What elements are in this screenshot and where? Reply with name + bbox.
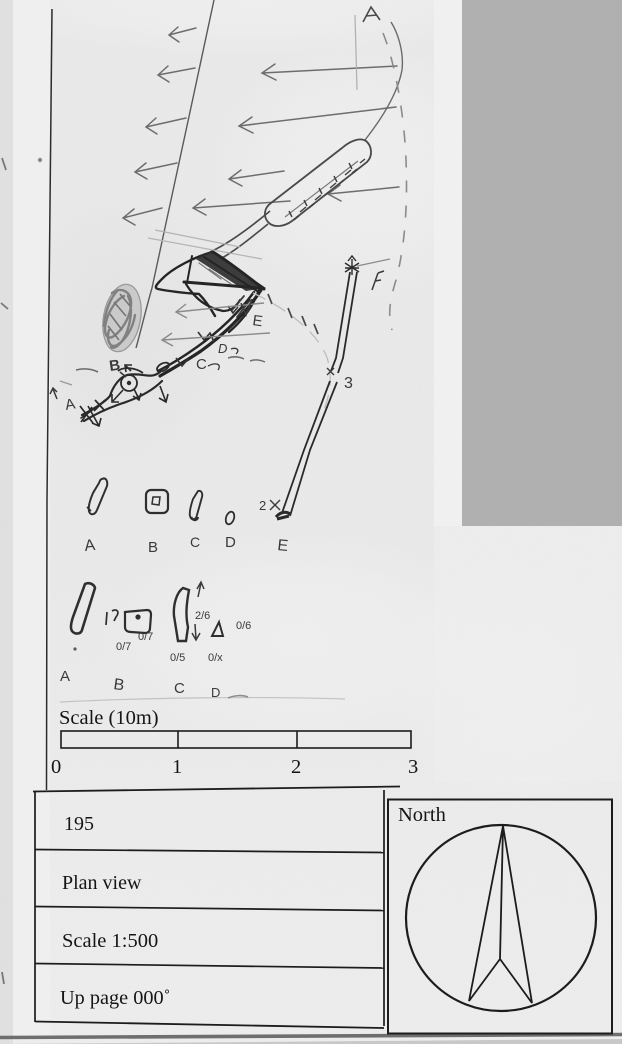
svg-text:0/5: 0/5: [170, 652, 185, 664]
svg-text:0: 0: [51, 756, 61, 778]
svg-text:2: 2: [259, 498, 266, 513]
svg-text:3: 3: [408, 756, 418, 778]
svg-text:1: 1: [172, 756, 182, 778]
svg-text:B: B: [148, 539, 158, 556]
svg-text:195: 195: [64, 813, 94, 835]
svg-text:Up page 000˚: Up page 000˚: [60, 987, 170, 1009]
svg-text:0/7: 0/7: [138, 631, 153, 643]
svg-text:D: D: [218, 341, 227, 356]
svg-text:E: E: [277, 537, 289, 555]
svg-text:2/6: 2/6: [195, 610, 210, 622]
svg-text:D: D: [225, 534, 236, 551]
svg-text:A: A: [84, 537, 97, 555]
svg-text:Scale 1:500: Scale 1:500: [62, 930, 158, 952]
svg-text:0/x: 0/x: [208, 652, 223, 664]
svg-text:C: C: [196, 356, 207, 373]
svg-text:C: C: [174, 680, 185, 697]
svg-text:North: North: [398, 804, 446, 826]
svg-text:2: 2: [291, 756, 301, 778]
svg-text:Scale (10m): Scale (10m): [59, 707, 159, 729]
svg-text:3: 3: [344, 375, 353, 392]
svg-text:C: C: [190, 534, 200, 550]
svg-text:0/7: 0/7: [116, 641, 131, 653]
svg-text:Plan view: Plan view: [62, 872, 142, 894]
svg-text:0/6: 0/6: [236, 620, 251, 632]
svg-text:A: A: [60, 668, 70, 685]
